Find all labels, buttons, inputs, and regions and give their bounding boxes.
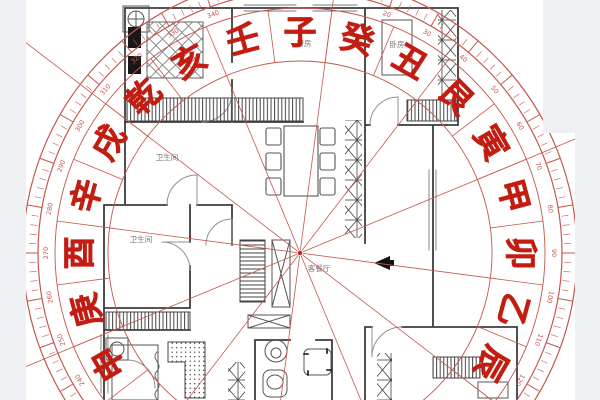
mountain-char-酉: 酉 <box>60 237 99 270</box>
mountain-char-卯: 卯 <box>502 237 541 270</box>
column-hatch-bottomright <box>377 353 392 400</box>
room-label-bathroom-2: 卫生间 <box>130 234 153 244</box>
mountain-char-子: 子 <box>284 13 317 52</box>
column-hatch-bottomcenter <box>228 362 245 400</box>
shelf-cabinet <box>240 240 265 302</box>
degree-label-80: 80 <box>545 204 554 214</box>
compass-center-dot <box>298 251 302 255</box>
photo-margin-topright <box>543 0 600 133</box>
fengshui-floorplan-photo: 厨房 卧房 卫生间 卫生间 客餐厅 申庚酉辛戌乾亥壬子癸丑艮寅甲卯乙辰20304… <box>0 0 600 400</box>
floorplan-compass-canvas: 厨房 卧房 卫生间 卫生间 客餐厅 申庚酉辛戌乾亥壬子癸丑艮寅甲卯乙辰20304… <box>0 0 600 400</box>
degree-label-270: 270 <box>42 247 50 259</box>
degree-label-90: 90 <box>550 249 558 257</box>
photo-margin-left <box>0 0 26 400</box>
wardrobe-hatch-center <box>345 120 362 238</box>
